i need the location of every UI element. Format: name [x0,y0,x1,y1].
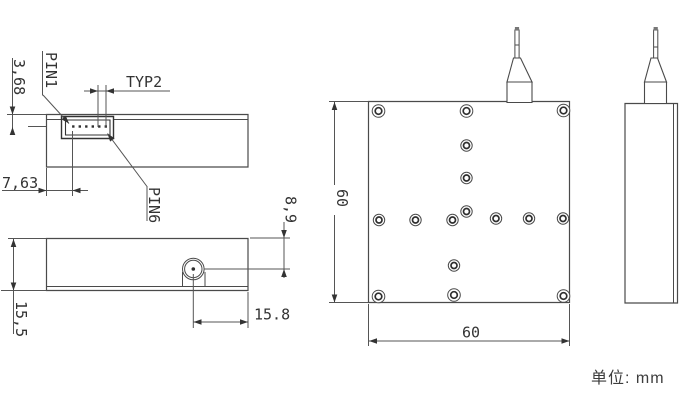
fiber-pigtail-side [645,27,667,104]
mounting-hole [448,289,461,302]
pin-dot [79,125,81,127]
dim-8-9-label: 8,9 [282,196,300,223]
module-body-right [625,104,678,304]
fiber-stub [654,30,658,58]
screw-hole [410,214,421,225]
screw-hole [447,214,458,225]
screw-hole [461,140,472,151]
pin-dot [85,125,87,127]
screw-hole [523,213,534,224]
screw-hole [490,213,501,224]
fiber-tip [654,27,658,31]
fiber-stub [515,30,519,58]
dim-15-8-label: 15.8 [254,306,290,324]
dim-7-63-label: 7,63 [2,174,38,192]
port-center-dot [192,267,196,271]
top-view: 60 60 [328,27,570,346]
mounting-hole [557,290,570,303]
pin1-label: PIN1 [42,52,60,88]
pin-dot [92,125,94,127]
module-body-front [47,239,249,291]
right-side-view [625,27,678,303]
dim-15-5-label: 15,5 [12,301,30,337]
fiber-tip [515,27,519,31]
pigtail-boot [645,58,667,82]
mounting-hole [372,290,385,303]
typ2-label: TYP2 [126,73,162,91]
pin-dot [72,125,74,127]
mounting-hole [372,105,385,118]
side-view-connector: PIN1 PIN6 TYP2 3,68 [2,51,248,223]
unit-note: 单位: mm [591,364,665,388]
screw-hole [557,213,568,224]
screw-hole [461,172,472,183]
pigtail-boot [507,58,532,82]
screw-hole [448,260,459,271]
module-body-top [369,102,570,303]
dim-3-68-label: 3,68 [10,59,28,95]
pigtail-ferrule [645,82,667,104]
dim-60-vertical-label: 60 [333,189,351,207]
technical-drawing: PIN1 PIN6 TYP2 3,68 [0,0,687,400]
mounting-hole [557,104,570,117]
screw-hole [373,214,384,225]
engineering-drawing-canvas: PIN1 PIN6 TYP2 3,68 [0,0,687,400]
dim-60-horizontal-label: 60 [462,324,480,342]
screw-hole [461,206,472,217]
fiber-pigtail-top [507,27,532,103]
pin6-label: PIN6 [145,187,163,223]
pigtail-ferrule [507,82,532,103]
mounting-hole [460,105,473,118]
